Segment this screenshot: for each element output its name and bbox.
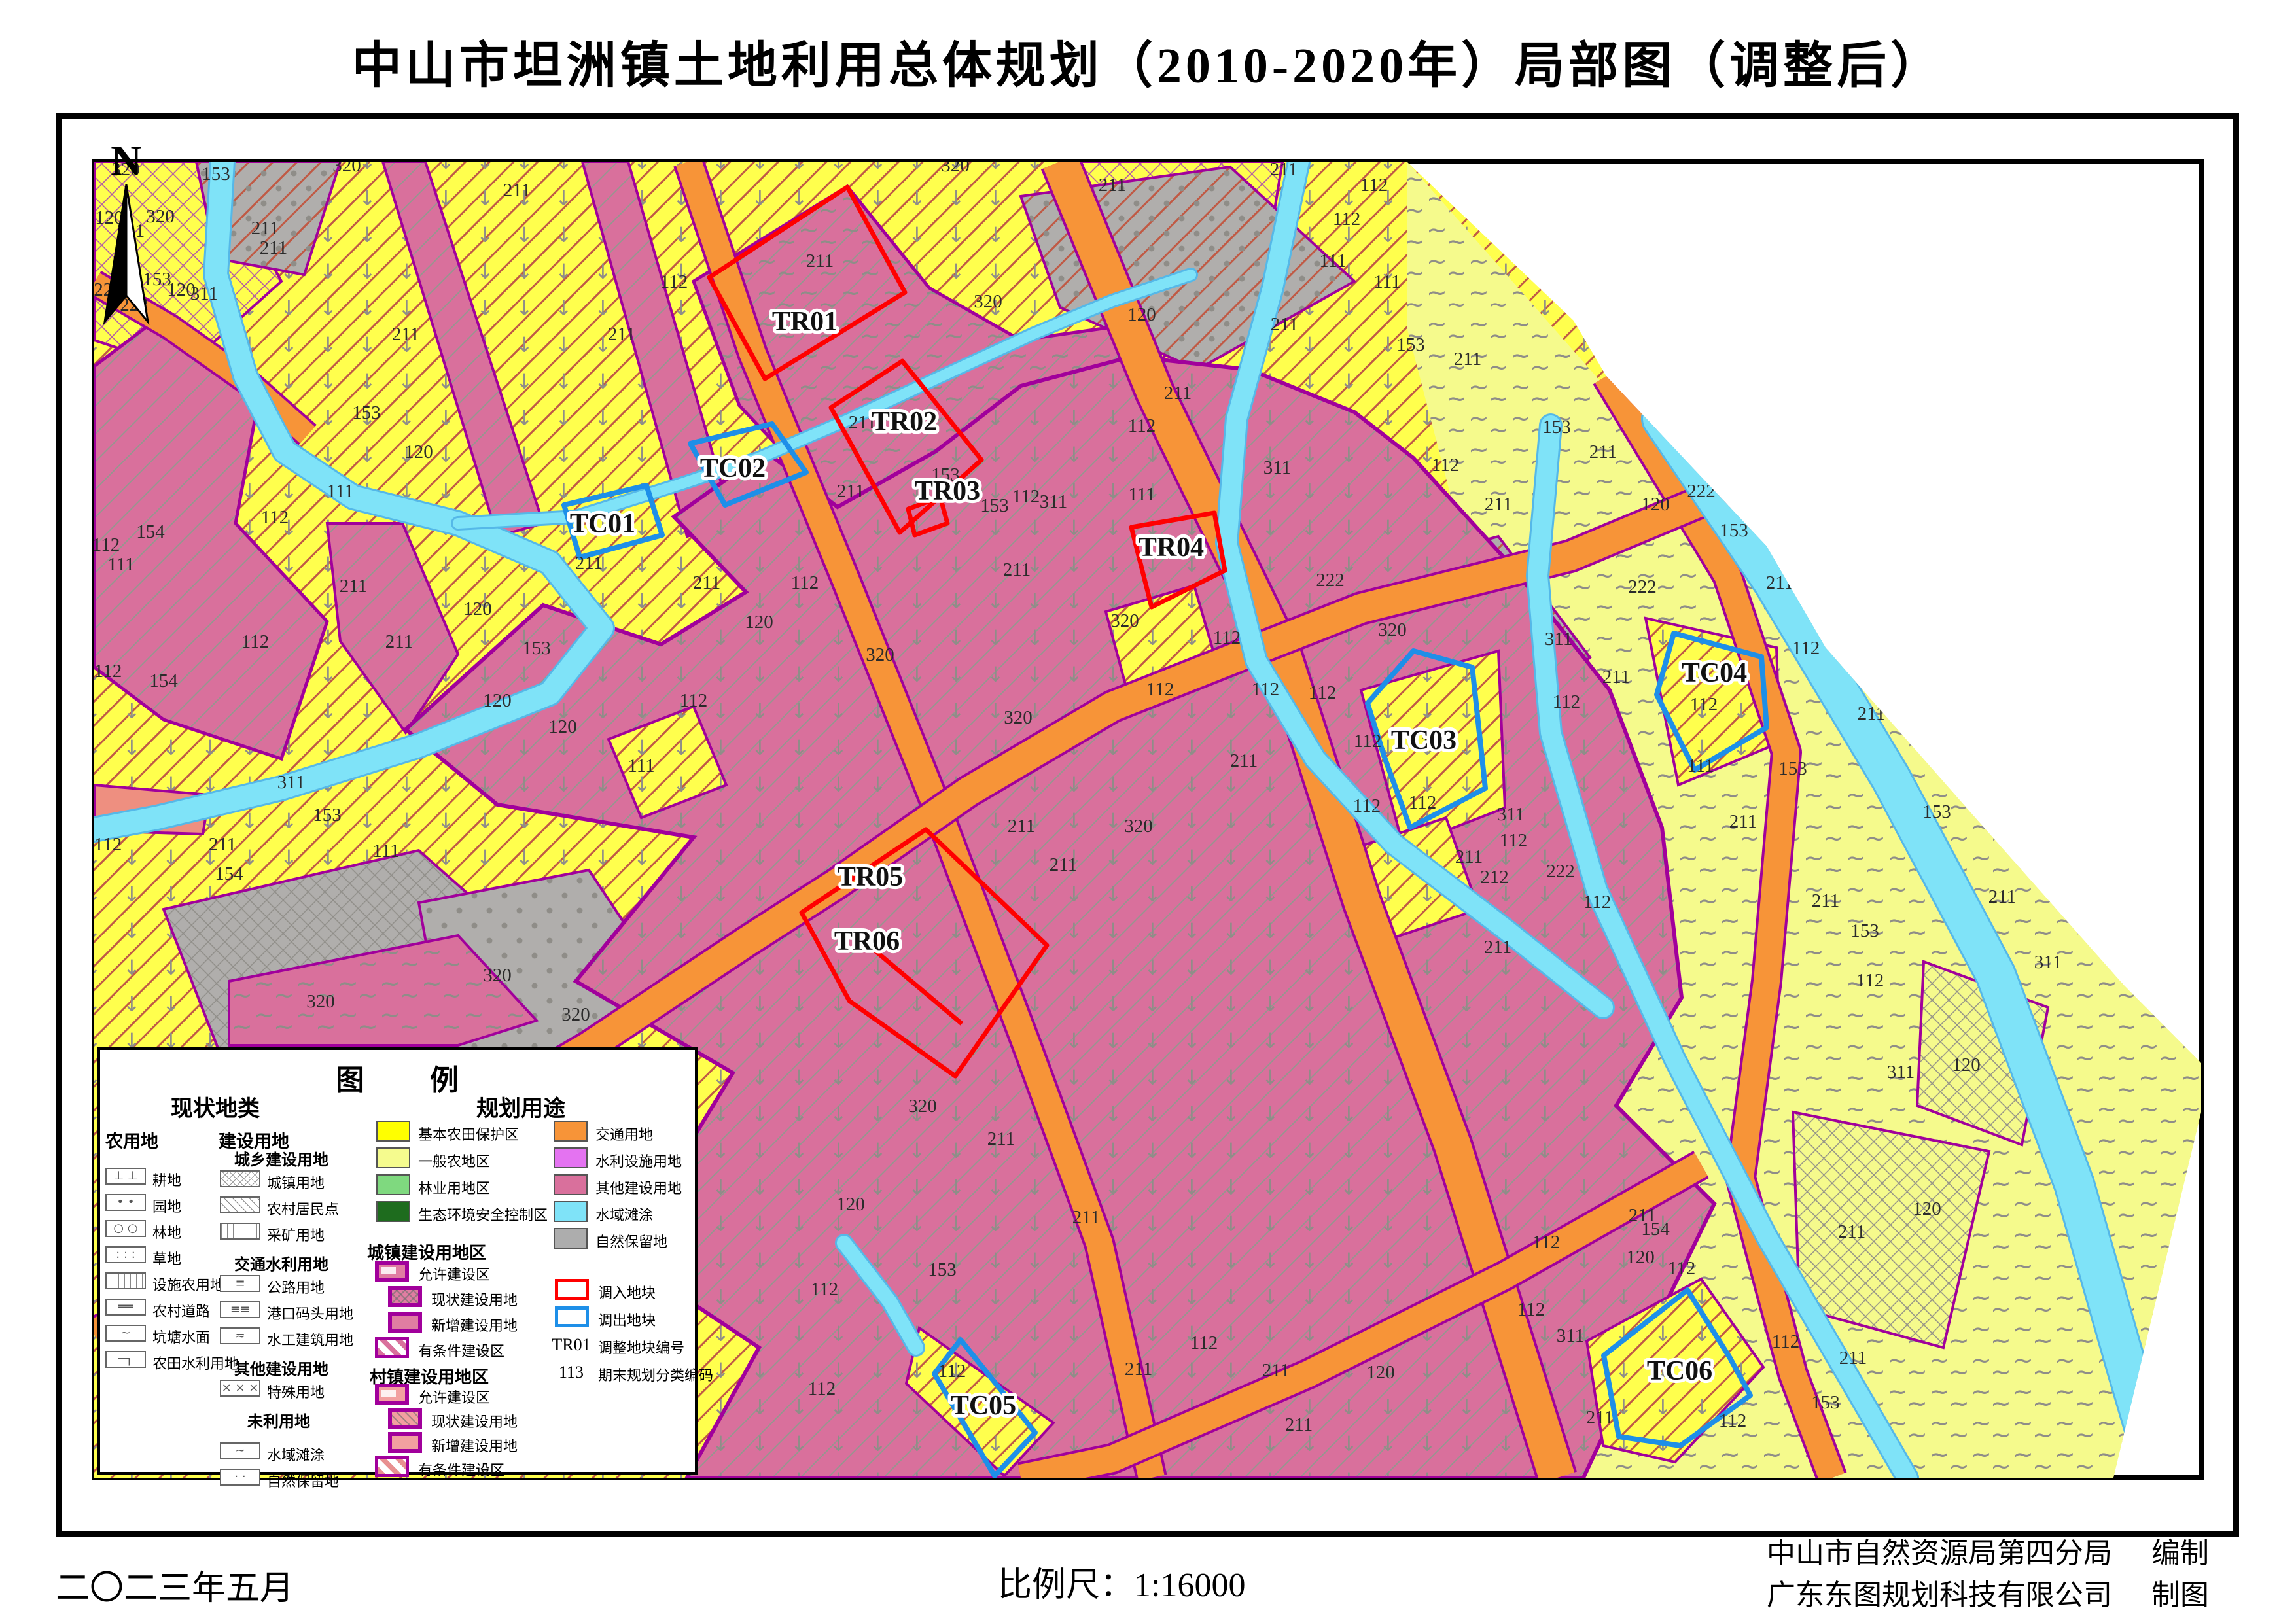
legend-zone-row-swatch <box>554 1121 588 1142</box>
parcel-label: TC05 <box>951 1391 1016 1421</box>
map-code-label: 153 <box>1542 417 1571 438</box>
legend-constr-row-label: 特殊用地 <box>267 1381 325 1402</box>
map-code-label: 211 <box>1050 854 1077 875</box>
legend-zone-row-swatch <box>554 1174 588 1195</box>
parcel-label: TC03 <box>1391 725 1457 756</box>
legend-constr-row-label: 水工建筑用地 <box>267 1329 353 1350</box>
map-code-label: 211 <box>1838 1221 1865 1242</box>
map-code-label: 112 <box>1213 627 1241 648</box>
map-code-label: 320 <box>483 965 512 986</box>
map-code-label: 153 <box>1778 758 1807 779</box>
legend-marker-label: 调出地块 <box>598 1309 656 1330</box>
legend-zone-row-label: 一般农地区 <box>418 1150 490 1171</box>
legend-village-row-label: 有条件建设区 <box>418 1459 504 1480</box>
parcel-label: TR04 <box>1139 532 1204 563</box>
map-code-label: 211 <box>1766 572 1793 593</box>
map-code-label: 120 <box>836 1194 865 1215</box>
map-code-label: 120 <box>463 599 492 620</box>
map-code-label: 211 <box>260 237 287 258</box>
legend-marker-swatch <box>555 1279 589 1300</box>
parcel-label: TR02 <box>872 407 937 437</box>
map-code-label: 111 <box>327 481 353 502</box>
map-code-label: 320 <box>908 1096 937 1117</box>
credit-org: 中山市自然资源局第四分局 <box>1767 1529 2112 1571</box>
legend-agri-row-swatch: ⊥ ⊥ <box>105 1168 146 1185</box>
map-code-label: 112 <box>1719 1410 1746 1431</box>
map-code-label: 120 <box>745 612 773 633</box>
legend-constr-row-label: 公路用地 <box>267 1276 325 1297</box>
map-code-label: 211 <box>1484 937 1511 958</box>
map-code-label: 320 <box>306 991 335 1012</box>
map-code-label: 320 <box>941 155 970 176</box>
north-letter: N <box>111 137 142 185</box>
parcel-label: TR01 <box>772 307 838 337</box>
map-code-label: 222 <box>1316 570 1345 591</box>
map-code-label: 153 <box>1720 520 1748 541</box>
map-code-label: 320 <box>866 644 894 665</box>
map-code-label: 320 <box>1004 707 1033 728</box>
map-code-label: 111 <box>627 756 654 777</box>
map-code-label: 211 <box>1230 750 1258 771</box>
legend-agri-row-label: 坑塘水面 <box>152 1326 210 1347</box>
map-code-label: 320 <box>974 291 1002 312</box>
legend-urban-row-label: 新增建设用地 <box>431 1314 518 1335</box>
map-code-label: 112 <box>1532 1232 1560 1253</box>
legend-village-row-swatch <box>388 1432 422 1453</box>
legend-village-row-label: 新增建设用地 <box>431 1435 518 1456</box>
legend-constr-row-label: 港口码头用地 <box>267 1302 353 1323</box>
legend-constr-row-label: 采矿用地 <box>267 1224 325 1245</box>
map-code-label: 311 <box>1557 1325 1584 1346</box>
parcel-label: TR06 <box>834 926 900 956</box>
map-code-label: 112 <box>92 534 120 555</box>
map-code-label: 112 <box>1772 1331 1799 1352</box>
map-code-label: 320 <box>146 206 175 227</box>
legend-agri-row-label: 耕地 <box>152 1169 181 1190</box>
parcel-label: TC02 <box>700 453 766 483</box>
credit-org: 广东东图规划科技有限公司 <box>1767 1571 2112 1613</box>
map-code-label: 120 <box>1913 1198 1941 1219</box>
map-code-label: 120 <box>1366 1362 1395 1383</box>
legend-constr-row-label: 农村居民点 <box>267 1198 339 1219</box>
legend-zone-row-label: 其他建设用地 <box>595 1177 682 1198</box>
map-code-label: 222 <box>1628 576 1657 597</box>
legend-urban-row-swatch <box>388 1312 422 1333</box>
map-code-label: 153 <box>1850 920 1879 941</box>
map-code-label: 222 <box>1546 861 1575 882</box>
map-code-label: 112 <box>1792 638 1820 659</box>
map-code-label: 154 <box>136 521 165 542</box>
map-code-label: 211 <box>1589 442 1617 462</box>
map-code-label: 112 <box>1360 175 1388 196</box>
legend-zone-row-label: 基本农田保护区 <box>418 1123 519 1144</box>
legend-agri-row-swatch: • • <box>105 1194 146 1211</box>
legend-constr-row-swatch: × × × <box>220 1380 260 1397</box>
legend-zone-row-swatch <box>376 1121 410 1142</box>
map-code-label: 211 <box>1729 811 1757 832</box>
map-code-label: 211 <box>1602 667 1630 688</box>
map-code-label: 212 <box>1480 867 1509 888</box>
legend-agri-row-swatch: ○ ○ <box>105 1220 146 1237</box>
legend-zone-row-swatch <box>376 1147 410 1168</box>
map-code-label: 211 <box>1858 703 1885 724</box>
map-code-label: 311 <box>277 772 305 793</box>
legend-agri-row-label: 草地 <box>152 1248 181 1268</box>
credit-role: 制图 <box>2151 1571 2209 1613</box>
map-code-label: 120 <box>1952 1055 1981 1075</box>
map-code-label: 112 <box>1583 892 1611 913</box>
map-code-label: 211 <box>575 553 603 574</box>
legend-village-row-label: 允许建设区 <box>418 1386 490 1407</box>
map-code-label: 211 <box>1003 559 1031 580</box>
map-code-label: 112 <box>808 1378 836 1399</box>
legend-title: 图 例 <box>336 1056 477 1098</box>
map-code-label: 211 <box>1485 494 1512 515</box>
legend-zone-row-swatch <box>554 1201 588 1222</box>
map-code-label: 112 <box>1146 679 1174 700</box>
map-code-label: 211 <box>1008 816 1035 837</box>
parcel-label: TR05 <box>838 862 903 892</box>
map-code-label: 153 <box>1396 334 1425 355</box>
legend-agri-row-swatch: ══ <box>105 1299 146 1316</box>
map-code-label: 153 <box>980 495 1009 516</box>
legend-plan-header: 规划用途 <box>476 1091 565 1123</box>
map-code-label: 311 <box>2034 952 2062 973</box>
map-code-label: 211 <box>251 218 279 239</box>
legend-code-symbol: 113 <box>552 1363 591 1382</box>
map-code-label: 211 <box>987 1128 1015 1149</box>
legend-group-header: 交通水利用地 <box>234 1251 328 1274</box>
map-code-label: 111 <box>1373 271 1400 292</box>
credit-line: 中山市自然资源局第四分局编制 <box>1767 1529 2209 1571</box>
legend-constr-row-swatch: ≡≡ <box>220 1301 260 1318</box>
legend-constr-row-swatch: ≂ <box>220 1327 260 1344</box>
legend-agri-row-label: 农村道路 <box>152 1300 210 1321</box>
map-code-label: 111 <box>1687 756 1714 777</box>
footer-credits: 中山市自然资源局第四分局编制广东东图规划科技有限公司制图 <box>1767 1529 2209 1613</box>
map-code-label: 154 <box>149 671 178 691</box>
map-code-label: 112 <box>1517 1299 1545 1320</box>
map-code-label: 112 <box>791 572 819 593</box>
legend-agri-row-label: 林地 <box>152 1221 181 1242</box>
legend-urban-row-label: 允许建设区 <box>418 1263 490 1284</box>
map-code-label: 112 <box>1668 1258 1695 1279</box>
legend-current-header: 现状地类 <box>171 1091 260 1123</box>
legend-zone-row-label: 交通用地 <box>595 1123 653 1144</box>
map-code-label: 211 <box>1285 1414 1313 1435</box>
map-code-label: 120 <box>483 690 512 711</box>
legend-constr-row-swatch: ≡ <box>220 1275 260 1292</box>
legend-agri-row-swatch: ~ <box>105 1325 146 1342</box>
parcel-label: TC04 <box>1682 658 1747 688</box>
legend-urban-row-label: 有条件建设区 <box>418 1340 504 1361</box>
map-code-label: 211 <box>1454 349 1481 370</box>
map-code-label: 211 <box>608 324 635 345</box>
map-code-label: 112 <box>938 1361 966 1382</box>
legend-constr-row-swatch <box>220 1170 260 1187</box>
map-code-label: 153 <box>1811 1392 1840 1413</box>
map-code-label: 120 <box>1127 304 1156 325</box>
map-code-label: 211 <box>209 834 236 855</box>
credit-line: 广东东图规划科技有限公司制图 <box>1767 1571 2209 1613</box>
map-code-label: 111 <box>372 841 399 862</box>
legend-agri-row-label: 农田水利用地 <box>152 1352 239 1373</box>
map-code-label: 112 <box>241 631 269 652</box>
legend-constr-row-swatch <box>220 1196 260 1213</box>
legend-constr-row-swatch <box>220 1223 260 1240</box>
legend-constr-row-label: 城镇用地 <box>267 1172 325 1193</box>
map-code-label: 112 <box>660 271 688 292</box>
map-code-label: 153 <box>313 805 342 826</box>
legend-urban-row-swatch <box>375 1337 409 1358</box>
legend-zone-row-swatch <box>554 1228 588 1249</box>
legend-constr-row-label: 水域滩涂 <box>267 1444 325 1465</box>
footer-scale: 比例尺：1:16000 <box>998 1557 1245 1606</box>
map-code-label: 112 <box>1354 731 1381 752</box>
map-code-label: 222 <box>1687 481 1716 502</box>
map-code-label: 112 <box>1128 415 1156 436</box>
legend-village-row-label: 现状建设用地 <box>431 1410 518 1431</box>
parcel-label: TC01 <box>570 509 635 539</box>
map-code-label: 311 <box>1887 1062 1915 1083</box>
map-code-label: 111 <box>1319 251 1346 271</box>
map-code-label: 311 <box>190 283 218 304</box>
map-code-label: 120 <box>404 442 433 462</box>
legend-panel: 图 例现状地类规划用途农用地建设用地⊥ ⊥耕地• •园地○ ○林地: : :草地… <box>97 1047 698 1475</box>
map-code-label: 311 <box>1545 629 1572 650</box>
map-code-label: 311 <box>1263 457 1291 478</box>
legend-zone-row-label: 水利设施用地 <box>595 1150 682 1171</box>
legend-group-header: 城乡建设用地 <box>234 1147 328 1170</box>
legend-urban-row-swatch <box>388 1286 422 1307</box>
map-code-label: 153 <box>202 164 230 184</box>
legend-marker-label: 调入地块 <box>598 1282 656 1302</box>
map-code-label: 211 <box>1270 159 1298 180</box>
map-code-label: 211 <box>1629 1205 1656 1226</box>
legend-zone-row-label: 自然保留地 <box>595 1230 667 1251</box>
map-code-label: 112 <box>261 507 289 528</box>
map-code-label: 211 <box>1271 314 1298 335</box>
legend-agri-row-swatch: ─┐ <box>105 1351 146 1368</box>
map-code-label: 211 <box>1839 1348 1867 1369</box>
map-code-label: 153 <box>352 402 381 423</box>
map-code-label: 112 <box>1500 830 1527 851</box>
legend-marker-swatch <box>555 1306 589 1327</box>
map-code-label: 211 <box>503 180 531 201</box>
legend-constr-row-swatch: ~ <box>220 1442 260 1459</box>
map-code-label: 112 <box>1333 209 1360 230</box>
map-code-label: 153 <box>522 638 551 659</box>
map-code-label: 211 <box>1812 890 1839 911</box>
map-code-label: 154 <box>215 864 243 884</box>
legend-agri-row-swatch: : : : <box>105 1246 146 1263</box>
map-code-label: 120 <box>1626 1247 1655 1268</box>
map-code-label: 112 <box>1353 795 1381 816</box>
map-code-label: 153 <box>928 1259 957 1280</box>
map-code-label: 120 <box>1641 494 1670 515</box>
map-code-label: 112 <box>94 661 122 682</box>
legend-constr-row-label: 自然保留地 <box>267 1470 339 1491</box>
legend-urban-row-swatch <box>375 1261 409 1282</box>
map-code-label: 311 <box>1497 804 1525 825</box>
map-code-label: 311 <box>1040 491 1067 512</box>
map-code-label: 211 <box>1455 846 1483 867</box>
map-code-label: 320 <box>1110 610 1139 631</box>
map-code-label: 153 <box>1922 801 1951 822</box>
legend-agri-row-label: 设施农用地 <box>152 1274 224 1295</box>
map-code-label: 111 <box>1128 484 1155 505</box>
legend-zone-row-label: 生态环境安全控制区 <box>418 1204 548 1225</box>
legend-zone-row-swatch <box>376 1174 410 1195</box>
map-code-label: 120 <box>548 716 577 737</box>
map-code-label: 112 <box>1432 455 1459 476</box>
legend-group-header: 其他建设用地 <box>234 1356 328 1379</box>
map-code-label: 112 <box>1252 679 1279 700</box>
legend-code-label: 调整地块编号 <box>598 1336 684 1357</box>
map-code-label: 112 <box>1190 1333 1218 1353</box>
legend-group-header: 未利用地 <box>247 1408 310 1431</box>
map-code-label: 112 <box>1012 486 1040 507</box>
legend-code-symbol: TR01 <box>552 1335 591 1355</box>
legend-village-row-swatch <box>388 1408 422 1429</box>
map-code-label: 211 <box>153 133 181 154</box>
legend-urban-row-label: 现状建设用地 <box>431 1289 518 1310</box>
map-code-label: 211 <box>1099 175 1126 196</box>
map-code-label: 320 <box>1124 816 1153 837</box>
map-code-label: 112 <box>1409 792 1436 813</box>
map-code-label: 211 <box>1125 1359 1152 1380</box>
legend-zone-row-label: 林业用地区 <box>418 1177 490 1198</box>
map-code-label: 320 <box>1378 620 1407 640</box>
parcel-label: TR03 <box>915 476 980 506</box>
legend-village-row-swatch <box>375 1456 409 1477</box>
legend-code-label: 期末规划分类编码 <box>598 1364 713 1385</box>
legend-village-row-swatch <box>375 1384 409 1405</box>
map-code-label: 112 <box>811 1279 838 1300</box>
legend-zone-row-swatch <box>376 1201 410 1222</box>
map-code-label: 211 <box>1262 1360 1290 1381</box>
map-code-label: 211 <box>1072 1207 1100 1228</box>
map-code-label: 211 <box>340 576 367 597</box>
map-code-label: 320 <box>332 155 361 176</box>
map-code-label: 112 <box>1309 682 1336 703</box>
legend-agri-row-swatch <box>105 1272 146 1289</box>
credit-role: 编制 <box>2151 1529 2209 1571</box>
map-code-label: 112 <box>1856 970 1884 991</box>
map-code-label: 112 <box>680 690 707 711</box>
map-code-label: 320 <box>561 1004 590 1025</box>
map-code-label: 211 <box>385 631 413 652</box>
legend-constr-row-swatch: · · <box>220 1469 260 1486</box>
map-code-label: 211 <box>806 251 834 271</box>
map-code-label: 112 <box>1690 694 1718 715</box>
legend-agri-header: 农用地 <box>105 1127 158 1153</box>
legend-agri-row-label: 园地 <box>152 1195 181 1216</box>
map-code-label: 211 <box>837 481 864 502</box>
map-code-label: 211 <box>1164 383 1192 404</box>
legend-zone-row-label: 水域滩涂 <box>595 1204 653 1225</box>
map-code-label: 111 <box>107 554 134 575</box>
map-code-label: 211 <box>1988 886 2016 907</box>
map-code-label: 211 <box>1586 1407 1614 1428</box>
legend-zone-row-swatch <box>554 1147 588 1168</box>
map-code-label: 112 <box>1553 691 1580 712</box>
map-code-label: 211 <box>693 572 720 593</box>
parcel-label: TC06 <box>1647 1356 1712 1386</box>
map-code-label: 211 <box>392 324 419 345</box>
footer-date: 二〇二三年五月 <box>56 1560 294 1609</box>
map-code-label: 112 <box>94 834 122 855</box>
